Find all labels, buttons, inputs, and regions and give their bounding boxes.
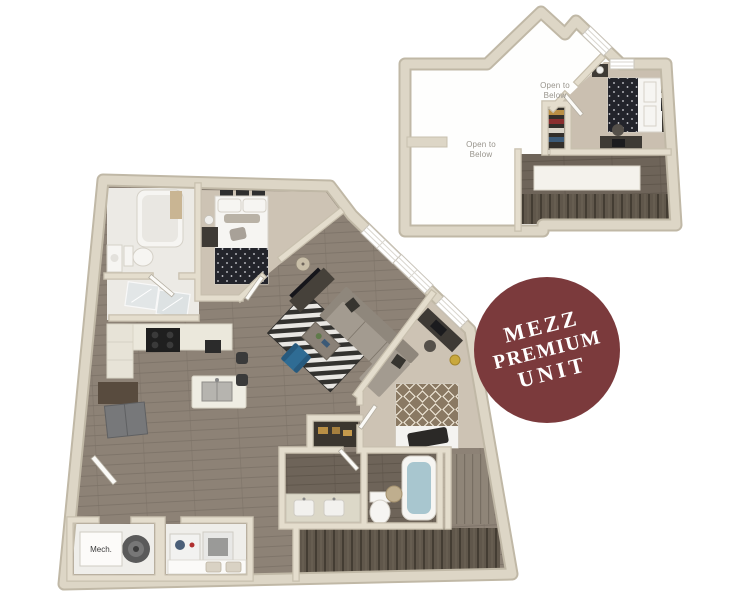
dryer [203, 532, 233, 562]
mezzanine-half-wall [534, 166, 640, 190]
floor-plan-drawing: Open to Below Open to Below [0, 0, 740, 592]
floor-lamp [296, 257, 310, 271]
main-floor-plan: Mech. [64, 180, 512, 584]
bathroom2-tub [402, 456, 436, 520]
laundry-counter [168, 560, 246, 574]
mezzanine-closet-shelves [546, 106, 566, 150]
closet-dresser [312, 421, 358, 447]
bathroom1-toilet [124, 246, 153, 266]
mezzanine-bed [608, 78, 666, 132]
svg-text:Open to: Open to [540, 81, 570, 90]
kitchen-lower-counter [98, 382, 138, 404]
mech-unit-box: Mech. [80, 532, 122, 566]
kitchen-stove [146, 328, 180, 352]
bar-stool-1 [236, 352, 248, 364]
bedroom1-bed [215, 196, 268, 284]
bathroom1-tub [137, 190, 183, 247]
bar-stool-2 [236, 374, 248, 386]
mezzanine-bedroom-window [610, 59, 634, 69]
mezzanine-floor-plan: Open to Below Open to Below [405, 12, 676, 231]
mezz-premium-unit-badge: MEZZ PREMIUM UNIT [474, 277, 620, 423]
bathroom2-basket [386, 486, 402, 502]
mezzanine-wall-stub [407, 137, 447, 147]
bedroom2-desk-chair [424, 340, 436, 352]
bedroom2-bed [396, 384, 458, 449]
svg-text:Mech.: Mech. [90, 545, 112, 554]
double-vanity [286, 494, 360, 522]
mezzanine-desk-chair [612, 124, 624, 136]
open-to-below-label-right: Open to Below [540, 81, 570, 100]
svg-text:Below: Below [544, 91, 567, 100]
kitchen-fridge [104, 402, 147, 438]
svg-text:Below: Below [470, 150, 493, 159]
floor-plan-image: Open to Below Open to Below [0, 0, 740, 592]
bedroom2-lamp [450, 355, 460, 365]
bathroom1-vanity [107, 245, 122, 272]
badge-text: MEZZ PREMIUM UNIT [485, 302, 610, 398]
mech-water-heater [122, 535, 150, 563]
kitchen-faucet [215, 378, 219, 382]
kitchen-microwave [205, 340, 221, 353]
svg-text:Open to: Open to [466, 140, 496, 149]
open-to-below-label-left: Open to Below [466, 140, 496, 159]
